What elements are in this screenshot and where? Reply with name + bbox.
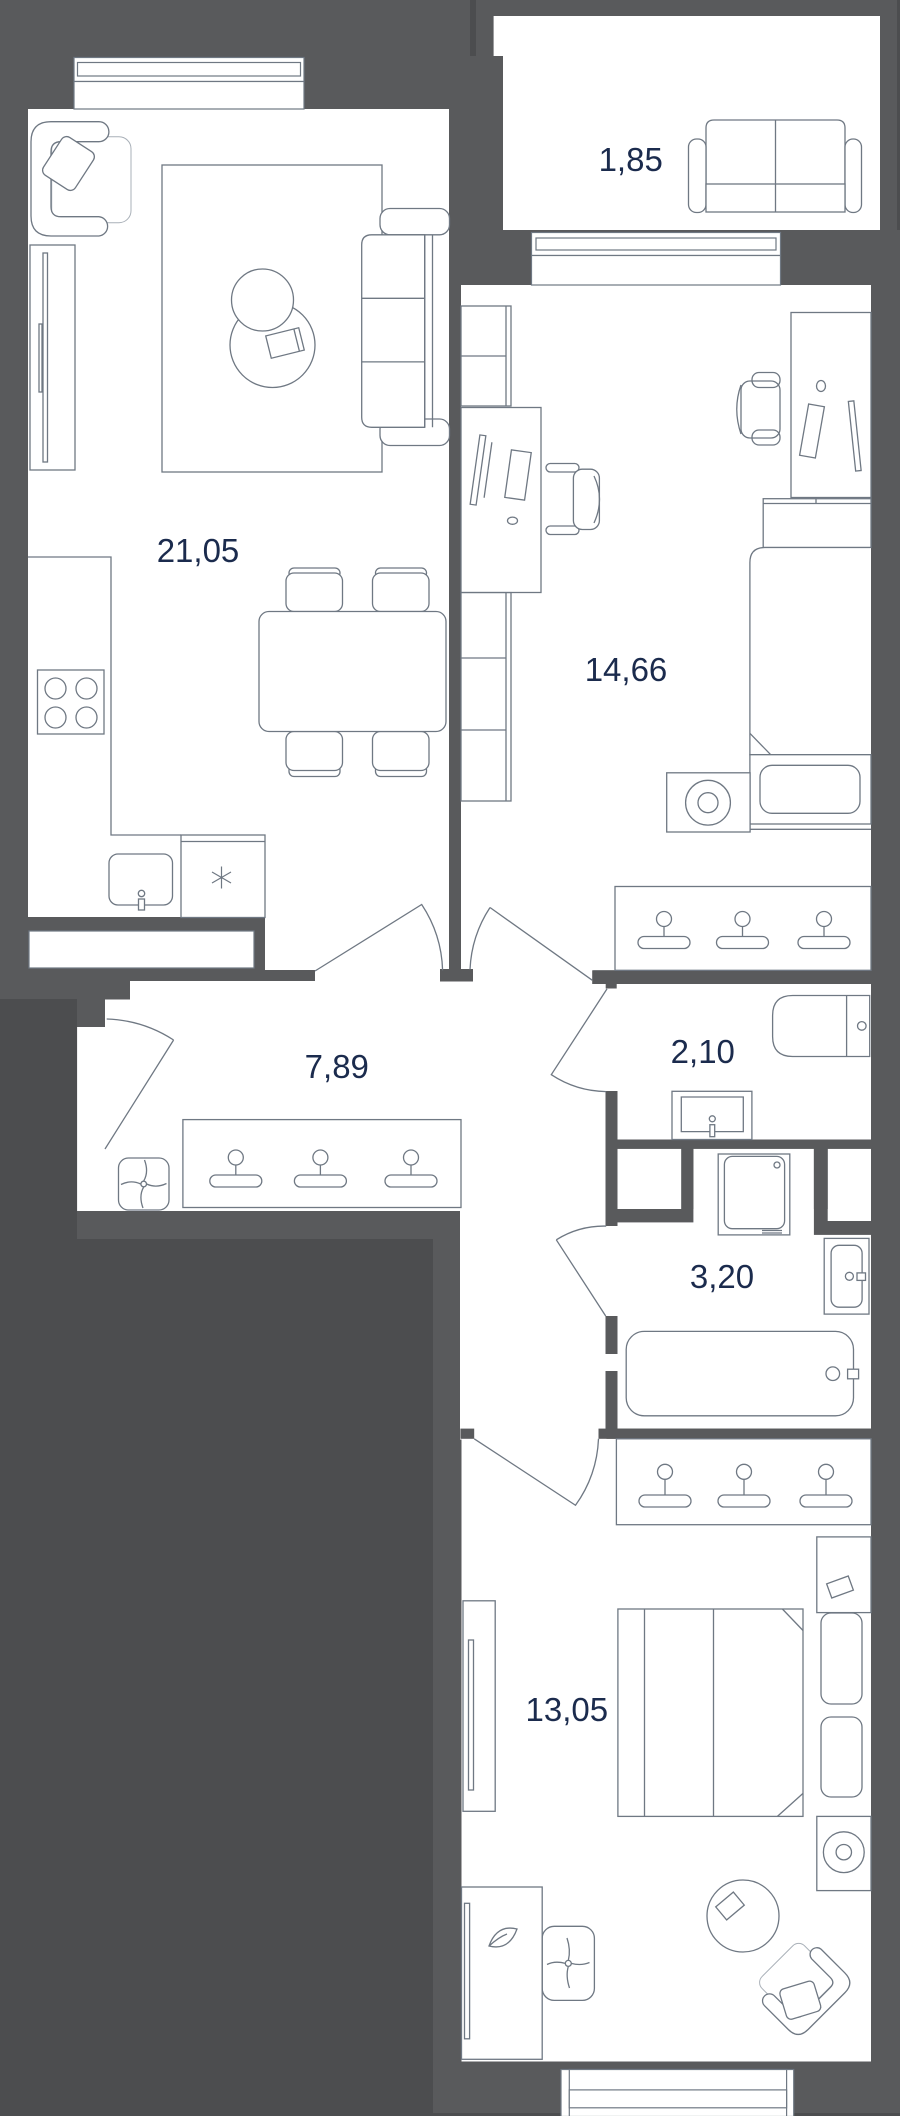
svg-text:1,85: 1,85	[599, 141, 663, 178]
svg-text:14,66: 14,66	[585, 651, 668, 688]
svg-text:7,89: 7,89	[305, 1048, 369, 1085]
svg-text:3,20: 3,20	[690, 1258, 754, 1295]
svg-text:21,05: 21,05	[157, 532, 240, 569]
svg-text:2,10: 2,10	[671, 1033, 735, 1070]
svg-text:13,05: 13,05	[526, 1691, 609, 1728]
